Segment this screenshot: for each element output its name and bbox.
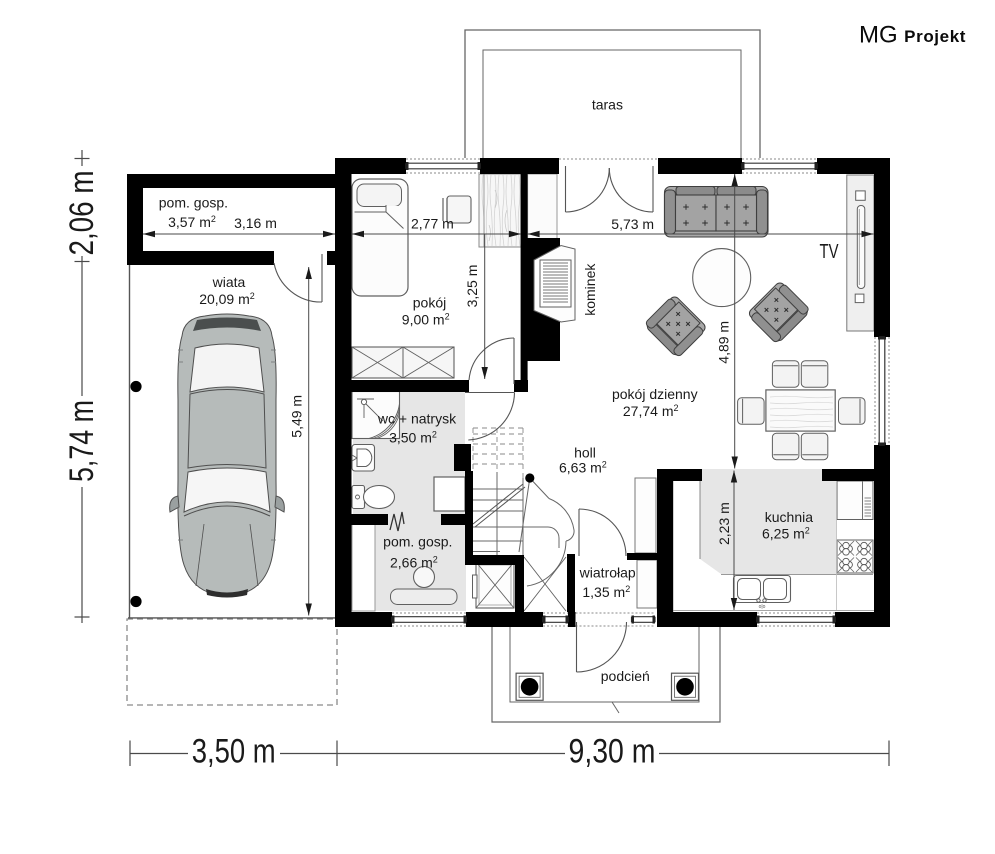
svg-text:9,30 m: 9,30 m <box>569 733 656 771</box>
svg-text:3,50 m2: 3,50 m2 <box>389 430 437 446</box>
svg-text:holl: holl <box>574 445 596 461</box>
svg-text:20,09 m2: 20,09 m2 <box>199 291 255 307</box>
svg-text:5,73 m: 5,73 m <box>611 216 654 232</box>
svg-text:TV: TV <box>820 241 839 263</box>
svg-text:3,57 m2: 3,57 m2 <box>168 214 216 230</box>
svg-text:podcień: podcień <box>601 668 650 684</box>
svg-text:wiata: wiata <box>212 274 246 290</box>
svg-text:pom. gosp.: pom. gosp. <box>159 195 228 211</box>
svg-text:wc + natrysk: wc + natrysk <box>377 411 457 427</box>
svg-text:1,35 m2: 1,35 m2 <box>582 584 630 600</box>
svg-text:3,16 m: 3,16 m <box>234 215 277 231</box>
svg-text:2,77 m: 2,77 m <box>411 216 454 232</box>
svg-text:2,23 m: 2,23 m <box>716 502 732 545</box>
svg-text:27,74 m2: 27,74 m2 <box>623 403 679 419</box>
svg-text:9,00 m2: 9,00 m2 <box>402 312 450 328</box>
svg-text:pokój dzienny: pokój dzienny <box>612 386 698 402</box>
svg-text:5,49 m: 5,49 m <box>289 395 305 438</box>
svg-text:3,50 m: 3,50 m <box>192 733 276 771</box>
svg-text:2,66 m2: 2,66 m2 <box>390 555 438 571</box>
svg-text:4,89 m: 4,89 m <box>716 321 732 364</box>
svg-text:pom. gosp.: pom. gosp. <box>383 534 452 550</box>
svg-text:kominek: kominek <box>582 263 598 316</box>
svg-text:kuchnia: kuchnia <box>765 509 813 525</box>
svg-text:6,63 m2: 6,63 m2 <box>559 460 607 476</box>
svg-text:2,06 m: 2,06 m <box>63 171 101 256</box>
svg-text:pokój: pokój <box>413 295 446 311</box>
svg-text:6,25 m2: 6,25 m2 <box>762 526 810 542</box>
svg-text:wiatrołap: wiatrołap <box>579 565 636 581</box>
svg-text:3,25 m: 3,25 m <box>464 265 480 308</box>
svg-text:o|o: o|o <box>759 604 766 610</box>
svg-text:taras: taras <box>592 97 623 113</box>
svg-text:5,74 m: 5,74 m <box>63 400 101 482</box>
